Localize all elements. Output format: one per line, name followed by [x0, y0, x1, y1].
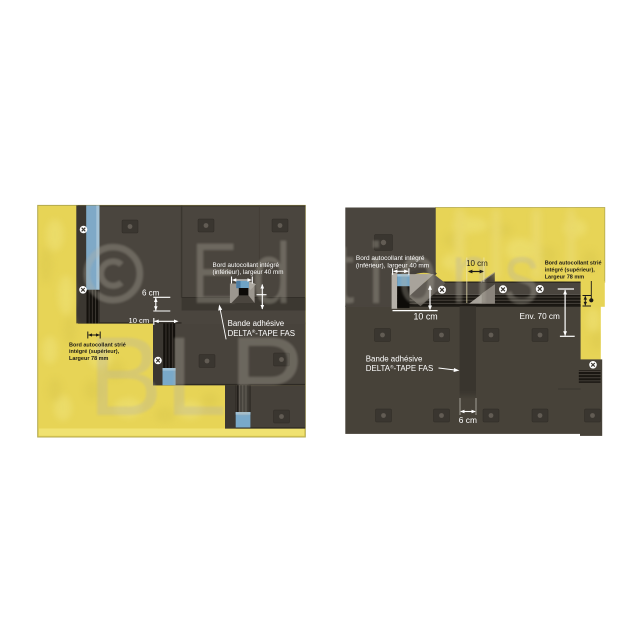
- svg-text:10 cm: 10 cm: [414, 312, 438, 322]
- svg-text:6 cm: 6 cm: [459, 415, 477, 425]
- svg-text:10 cm: 10 cm: [129, 316, 150, 325]
- svg-text:Bord autocollant strié: Bord autocollant strié: [69, 343, 126, 349]
- svg-text:intégré (supérieur),: intégré (supérieur),: [545, 268, 596, 274]
- svg-text:(inférieur), largeur 40 mm: (inférieur), largeur 40 mm: [356, 262, 429, 269]
- svg-text:DELTA®-TAPE FAS: DELTA®-TAPE FAS: [366, 364, 433, 374]
- svg-text:intégré (supérieur),: intégré (supérieur),: [69, 349, 120, 355]
- svg-text:Bord autocollant intégré: Bord autocollant intégré: [213, 262, 280, 269]
- svg-text:Bord autocollant intégré: Bord autocollant intégré: [356, 255, 425, 262]
- svg-text:Bord autocollant strié: Bord autocollant strié: [545, 261, 602, 267]
- svg-text:Largeur 78 mm: Largeur 78 mm: [545, 275, 585, 281]
- svg-text:(inférieur), largeur 40 mm: (inférieur), largeur 40 mm: [213, 269, 284, 276]
- svg-text:10 cm: 10 cm: [466, 259, 488, 268]
- svg-text:Bande adhésive: Bande adhésive: [366, 355, 423, 364]
- svg-text:6 cm: 6 cm: [142, 288, 160, 297]
- svg-text:DELTA®-TAPE FAS: DELTA®-TAPE FAS: [228, 328, 295, 338]
- svg-text:Bande adhésive: Bande adhésive: [228, 319, 285, 328]
- svg-text:Largeur 78 mm: Largeur 78 mm: [69, 356, 109, 362]
- svg-text:Env. 70 cm: Env. 70 cm: [520, 312, 561, 321]
